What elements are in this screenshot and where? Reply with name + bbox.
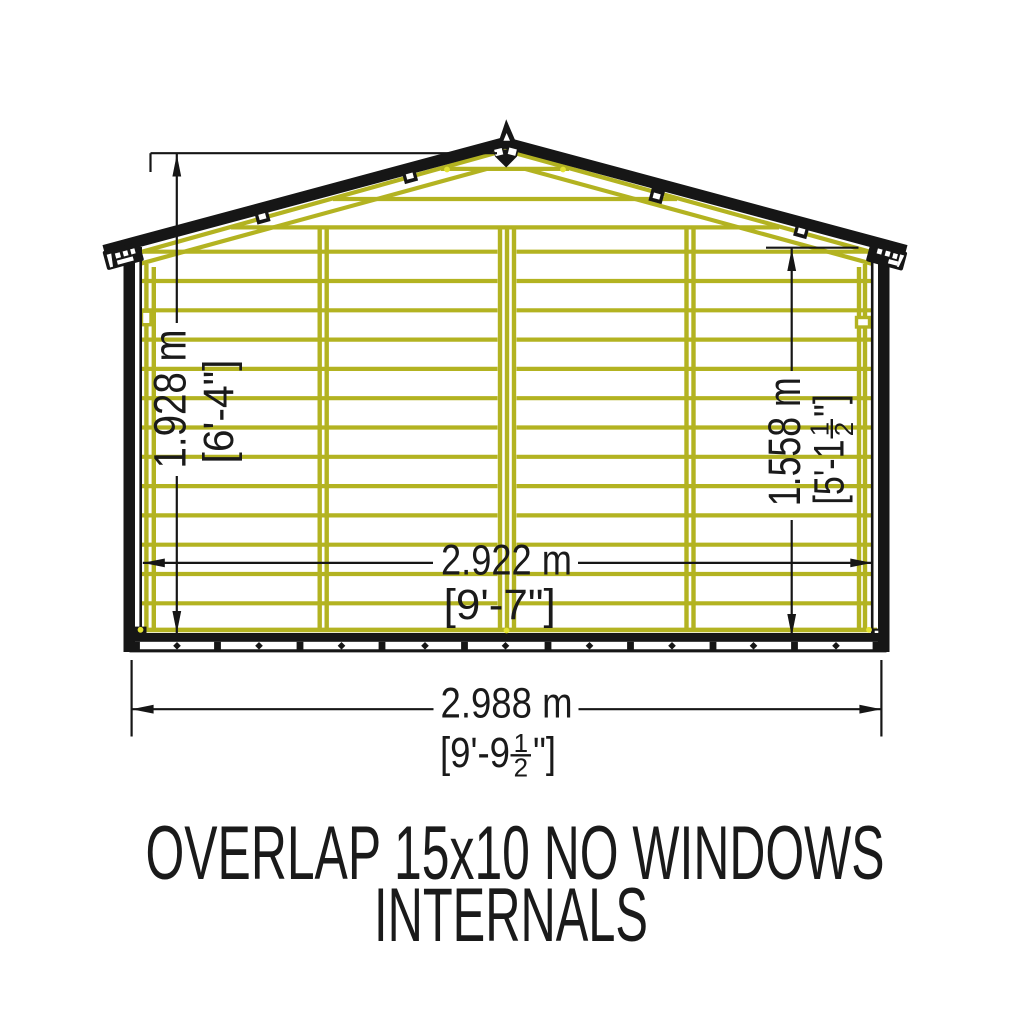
- svg-text:2: 2: [514, 753, 528, 783]
- svg-text:1.928 m: 1.928 m: [145, 330, 196, 469]
- svg-text:[9'-7"]: [9'-7"]: [444, 581, 556, 629]
- svg-text:[6'-4"]: [6'-4"]: [195, 360, 243, 464]
- svg-text:INTERNALS: INTERNALS: [374, 873, 648, 958]
- svg-text:[9'-9: [9'-9: [440, 729, 510, 777]
- svg-text:[5'-1: [5'-1: [806, 440, 854, 505]
- svg-text:"]: "]: [533, 729, 556, 777]
- svg-text:2: 2: [829, 422, 859, 436]
- svg-text:2.922 m: 2.922 m: [441, 537, 572, 585]
- svg-text:1.558 m: 1.558 m: [759, 377, 810, 506]
- svg-text:"]: "]: [806, 394, 854, 417]
- svg-text:2.988 m: 2.988 m: [441, 680, 573, 728]
